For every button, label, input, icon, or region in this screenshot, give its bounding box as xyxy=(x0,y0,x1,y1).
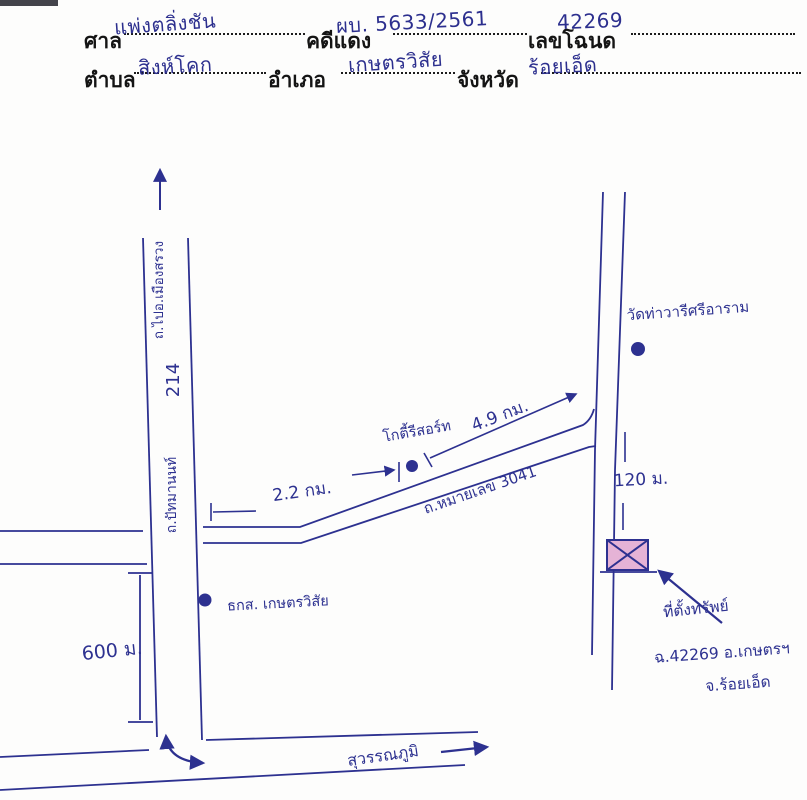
case-no-value: ผบ. 5633/2561 xyxy=(335,2,489,42)
court-value: แพ่งตลิ่งชัน xyxy=(113,4,217,43)
road-3041-bottom-edge xyxy=(203,446,596,543)
dim-line-arrow xyxy=(352,470,394,475)
dim-2-2-label: 2.2 กม. xyxy=(271,478,333,506)
south-road-top-west xyxy=(0,750,149,757)
province-label: จังหวัด xyxy=(457,64,519,97)
road-214-right-edge xyxy=(188,238,202,740)
south-road-top-east xyxy=(206,732,478,740)
dim-120-label: 120 ม. xyxy=(613,469,668,492)
east-road-right-edge xyxy=(612,192,625,690)
scan-artifact-top-left xyxy=(0,0,58,6)
temple-label: วัดท่าวารีศรีอาราม xyxy=(626,298,750,325)
deed-no-value: 42269 xyxy=(557,8,624,34)
dimension-2-2-km: 2.2 กม. xyxy=(211,462,399,521)
plot-caption-line3: จ.ร้อยเอ็ด xyxy=(705,672,772,696)
hand-drawn-map: 2.2 กม. 4.9 กม. 120 ม. 600 ม. xyxy=(0,140,807,800)
bank-dot xyxy=(199,594,212,607)
temple-dot xyxy=(631,342,645,356)
turn-arrow xyxy=(166,736,203,763)
route-214-label: 214 xyxy=(163,363,184,397)
plot-caption: ที่ตั้งทรัพย์ ฉ.42269 อ.เกษตรฯ จ.ร้อยเอ็… xyxy=(653,594,790,696)
south-road-label: สุวรรณภูมิ xyxy=(346,741,420,771)
plot-caption-line1: ที่ตั้งทรัพย์ xyxy=(662,594,730,622)
road-3041-label: ถ.หมายเลข 3041 xyxy=(421,462,539,518)
road-214-name-label: ถ.ปัทมานนท์ xyxy=(163,457,180,534)
east-road xyxy=(592,192,625,690)
dim-600-label: 600 ม. xyxy=(81,637,144,665)
dotted-leader xyxy=(631,33,795,35)
west-road xyxy=(0,531,147,564)
subdistrict-value: สิงห์โคก xyxy=(137,48,213,84)
district-value: เกษตรวิสัย xyxy=(347,43,444,82)
resort-label: โกตี้รีสอร์ท xyxy=(381,414,452,446)
resort-dot xyxy=(406,460,418,472)
subdistrict-label: ตำบล xyxy=(84,64,136,97)
dim-tick xyxy=(424,453,432,467)
dimension-120-m: 120 ม. xyxy=(613,432,668,530)
east-road-left-edge xyxy=(592,192,603,655)
province-value: ร้อยเอ็ด xyxy=(527,48,598,84)
dimension-600-m: 600 ม. xyxy=(81,573,153,722)
dim-line xyxy=(213,511,256,512)
south-road-bottom-edge xyxy=(0,765,465,790)
bank-label: ธกส. เกษตรวิสัย xyxy=(227,593,329,614)
district-label: อำเภอ xyxy=(268,64,326,97)
north-road-label: ถ.ไปอ.เมืองสรวง xyxy=(151,241,167,339)
suwannaphum-direction-arrow xyxy=(441,747,487,752)
dim-4-9-label: 4.9 กม. xyxy=(469,396,532,436)
plot-caption-line2: ฉ.42269 อ.เกษตรฯ xyxy=(653,639,790,666)
scanned-court-map-document: ศาล คดีแดง เลขโฉนด แพ่งตลิ่งชัน ผบ. 5633… xyxy=(0,0,807,800)
